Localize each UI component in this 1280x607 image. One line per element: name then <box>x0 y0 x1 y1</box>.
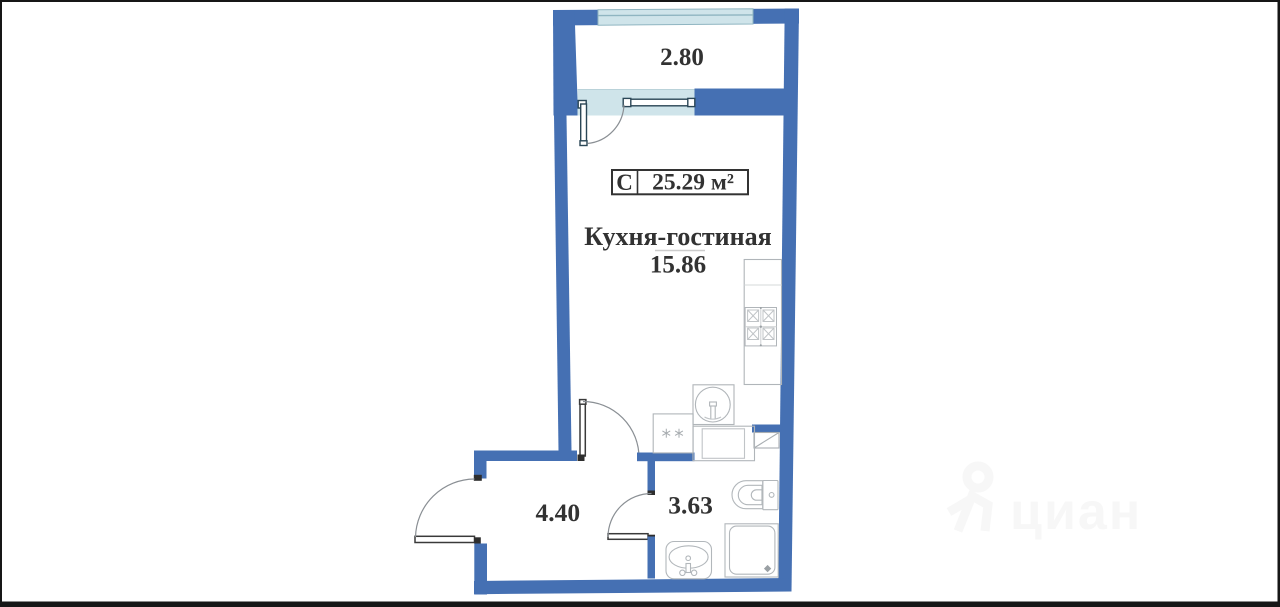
svg-text:С: С <box>616 170 633 195</box>
svg-text:2.80: 2.80 <box>660 44 704 71</box>
svg-text:4.40: 4.40 <box>535 498 580 527</box>
svg-text:25.29 м²: 25.29 м² <box>652 170 734 196</box>
svg-text:3.63: 3.63 <box>668 491 713 520</box>
svg-text:циан: циан <box>1010 483 1142 541</box>
svg-text:15.86: 15.86 <box>650 252 706 279</box>
svg-text:Кухня-гостиная: Кухня-гостиная <box>584 222 771 251</box>
